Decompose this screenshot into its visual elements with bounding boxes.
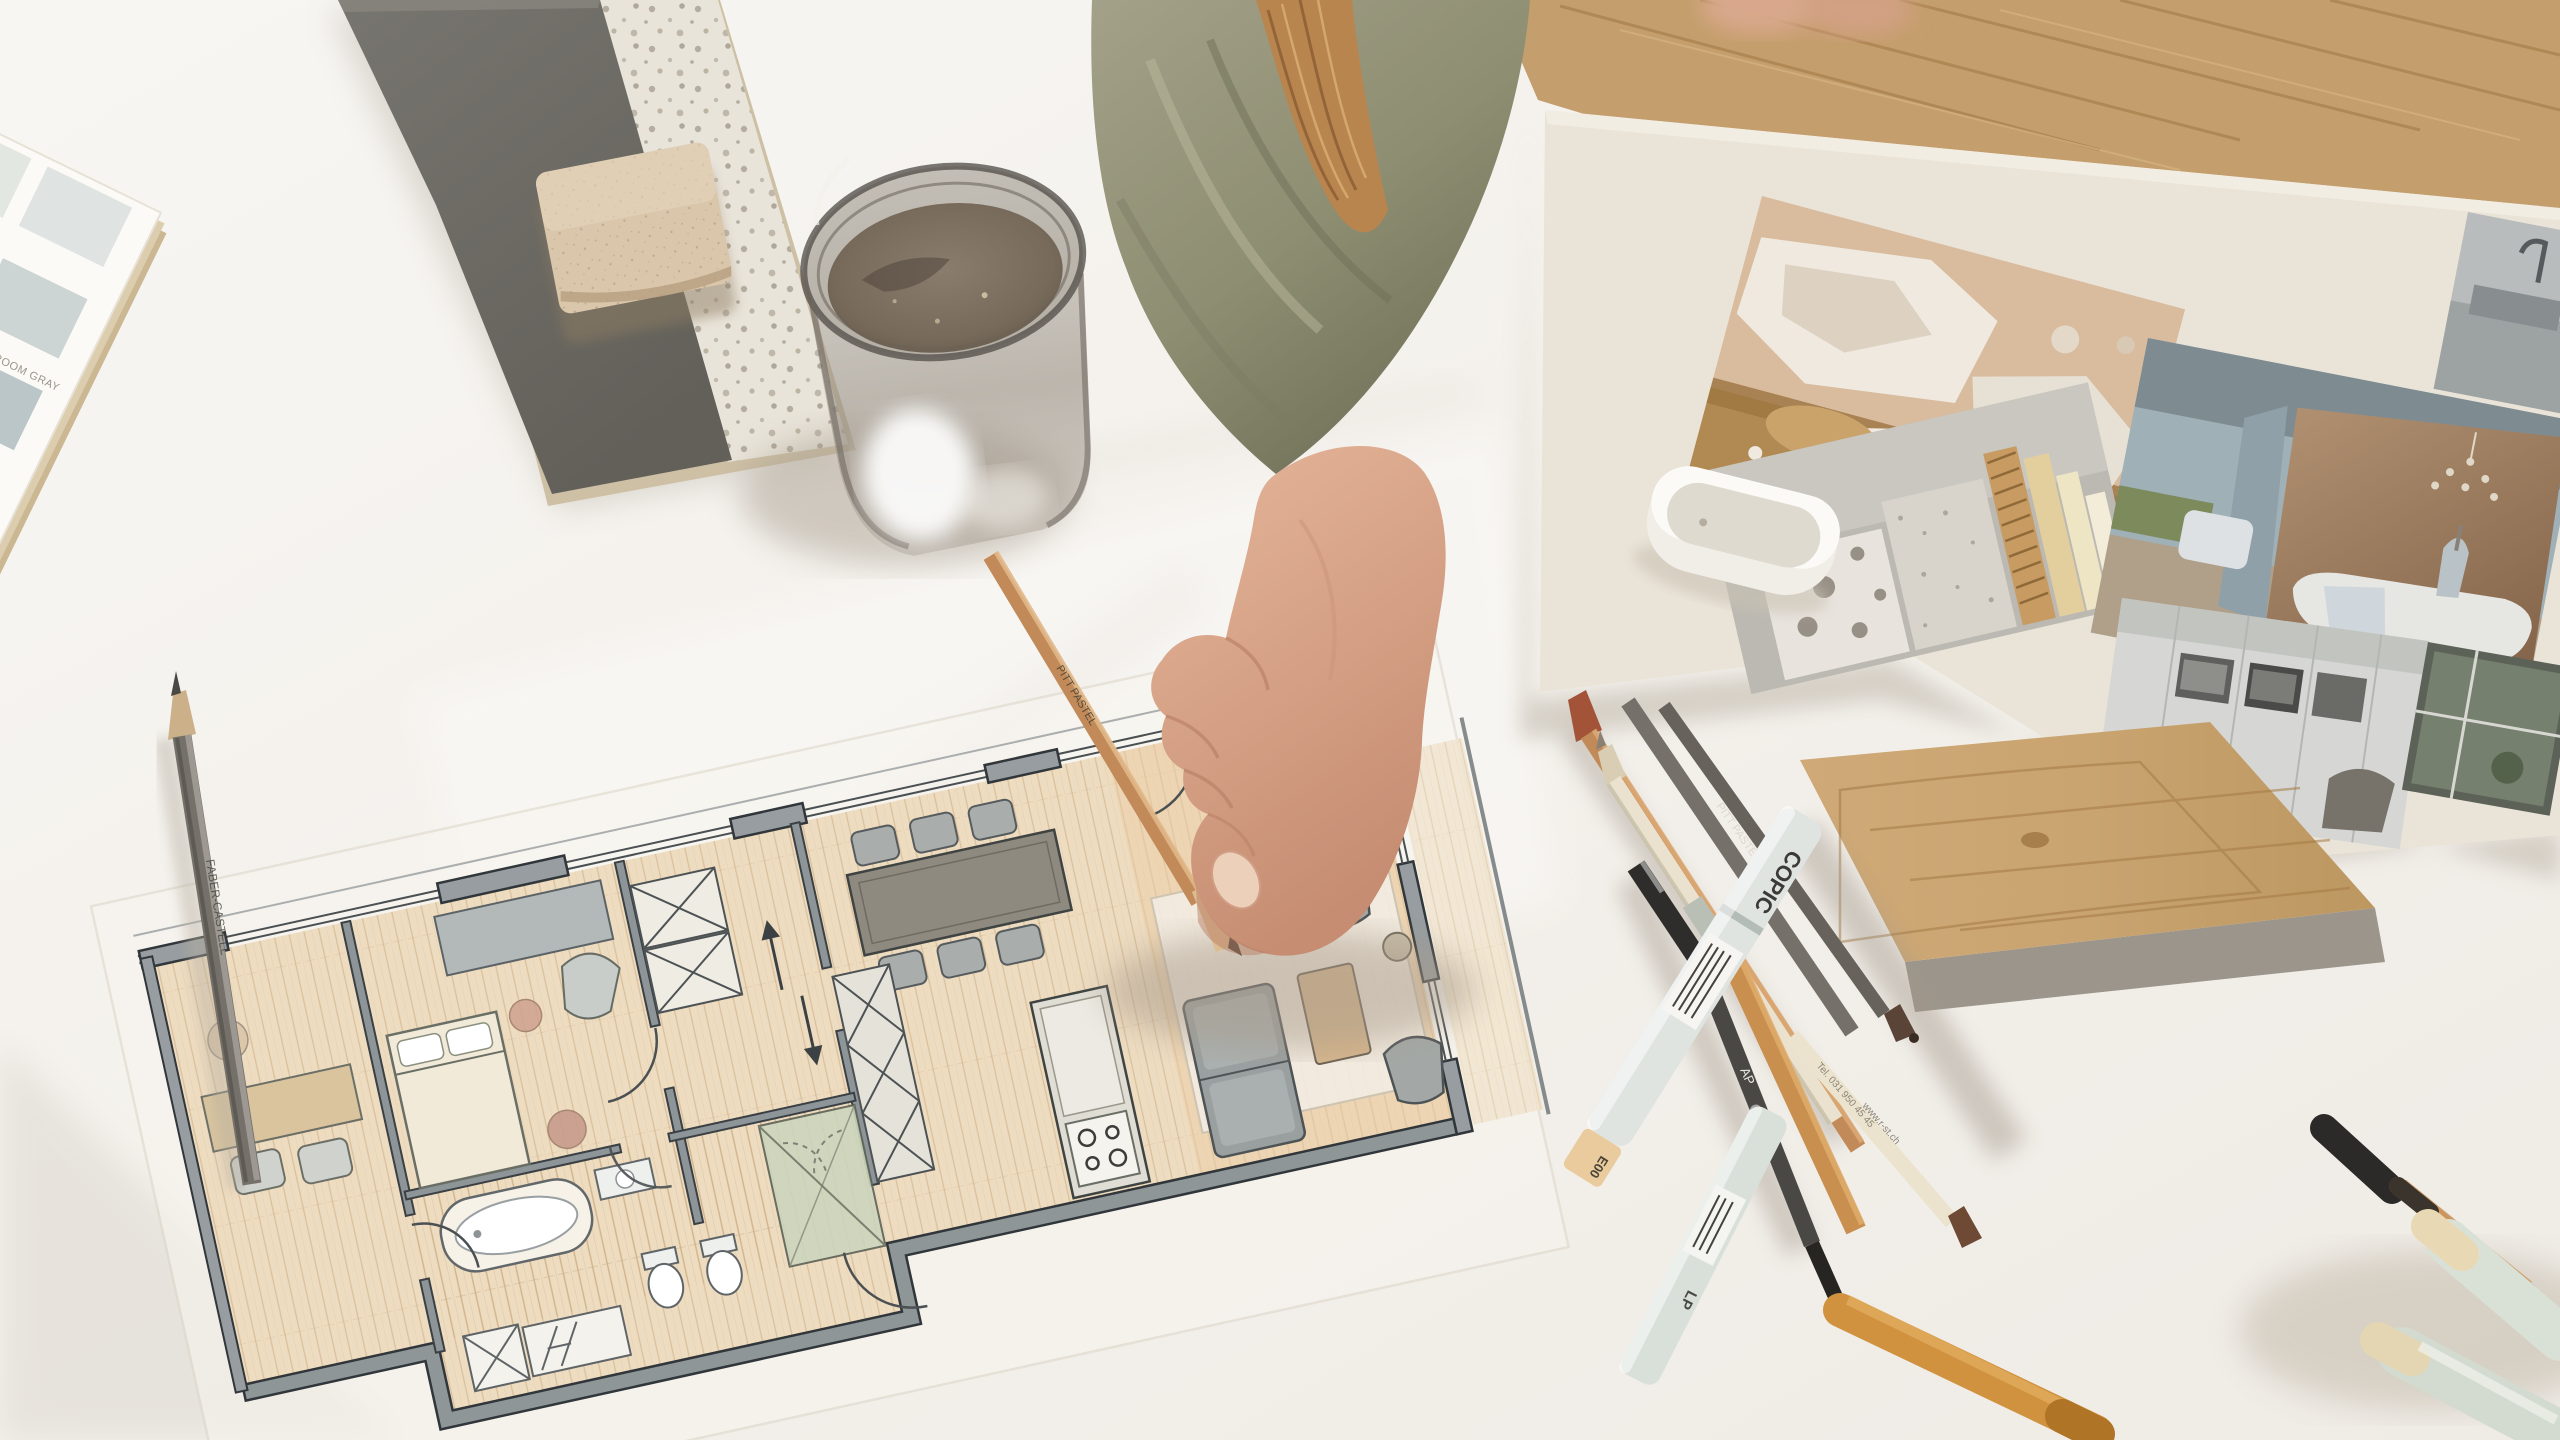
photo-designer-desk: TRERON LAMP ROOM GRAY PLUMMETT xyxy=(0,0,2560,1440)
scene-canvas: TRERON LAMP ROOM GRAY PLUMMETT xyxy=(0,0,2560,1440)
photo-window xyxy=(2402,642,2560,816)
stone-tile-sample xyxy=(532,141,740,346)
